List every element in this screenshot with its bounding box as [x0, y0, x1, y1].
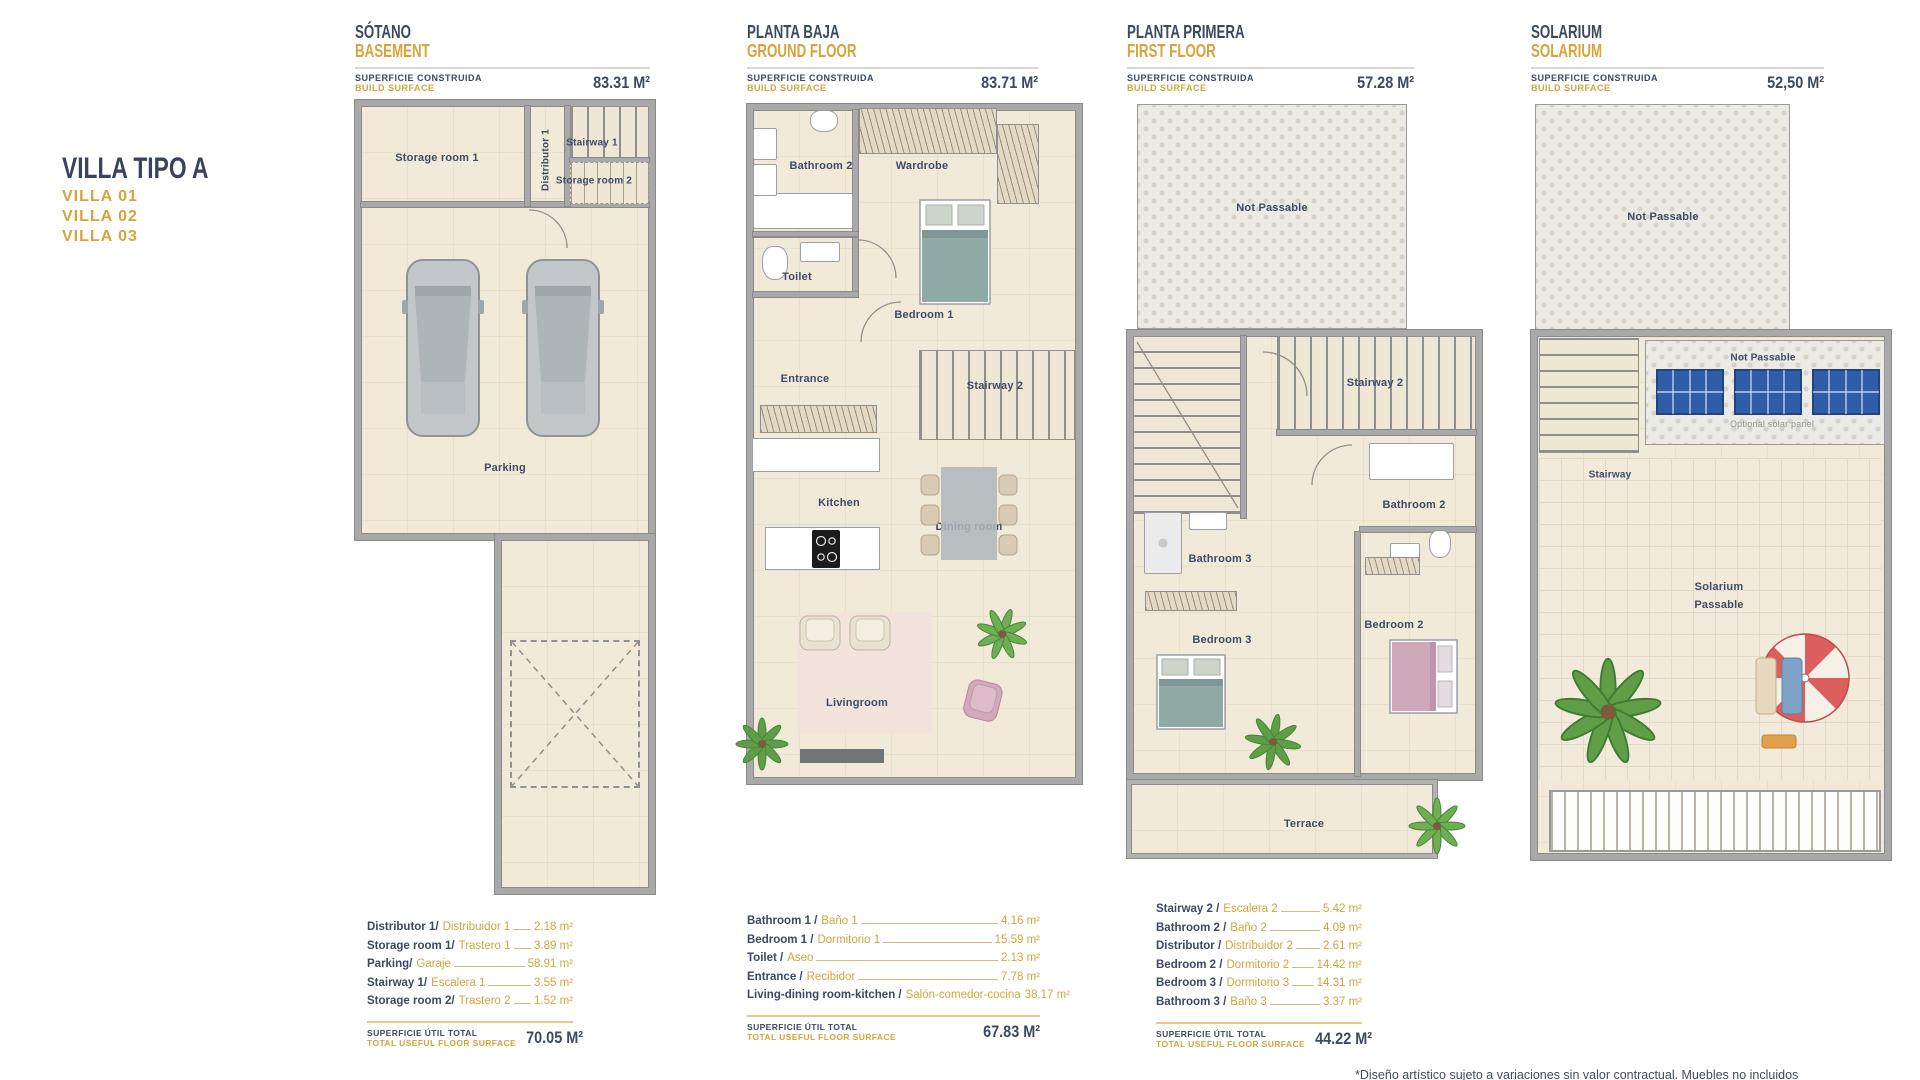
wall: [1277, 430, 1476, 435]
list-item: Distributor / Distribuidor 2 2.61 m²: [1156, 940, 1362, 959]
page-title: VILLA TIPO A: [62, 152, 209, 186]
build-surface-value: 83.71 M²: [981, 73, 1038, 93]
stairwell-stairs: [1133, 336, 1241, 514]
leader-line: [1281, 911, 1320, 912]
leader-line: [514, 1003, 531, 1004]
item-en: Distributor /: [1156, 940, 1221, 952]
divider: [1127, 67, 1414, 69]
room-label-stairway2: Stairway 2: [967, 380, 1023, 392]
list-item: Living-dining room-kitchen / Salón-comed…: [747, 989, 1040, 1008]
list-item: Stairway 1/ Escalera 1 3.55 m²: [367, 977, 573, 996]
item-en: Stairway 2 /: [1156, 903, 1219, 915]
plan-title-en: SOLARIUM: [1531, 41, 1748, 62]
room-label-stairway2: Stairway 2: [1347, 377, 1403, 389]
list-item: Bathroom 2 / Baño 2 4.09 m²: [1156, 922, 1362, 941]
room-label-parking: Parking: [484, 462, 526, 474]
room-label-bathroom2: Bathroom 2: [789, 160, 852, 172]
basement-header: SÓTANO BASEMENT SUPERFICIE CONSTRUIDA BU…: [355, 22, 650, 93]
room-label-not-passable-top: Not Passable: [1627, 211, 1698, 223]
list-item: Storage room 2/ Trastero 2 1.52 m²: [367, 995, 573, 1014]
item-es: Aseo: [787, 952, 813, 964]
item-en: Stairway 1/: [367, 977, 427, 989]
disclaimer-text: *Diseño artístico sujeto a variaciones s…: [1355, 1068, 1798, 1080]
item-value: 1.52 m²: [534, 995, 573, 1007]
surface-label-en: BUILD SURFACE: [747, 83, 874, 93]
wall: [853, 110, 858, 232]
kitchen-counter: [752, 438, 880, 472]
leader-line: [816, 960, 998, 961]
total-value: 44.22 M²: [1315, 1029, 1372, 1049]
ground-floor-room-list: Bathroom 1 / Baño 1 4.16 m² Bedroom 1 / …: [747, 915, 1040, 1042]
total-label-en: TOTAL USEFUL FLOOR SURFACE: [367, 1038, 516, 1048]
item-es: Baño 1: [821, 915, 857, 927]
list-item: Bedroom 1 / Dormitorio 1 15.59 m²: [747, 934, 1040, 953]
sink-fixture: [1189, 512, 1227, 530]
plan-title-es: PLANTA BAJA: [747, 22, 962, 43]
divider: [747, 67, 1038, 69]
item-en: Bathroom 3 /: [1156, 996, 1226, 1008]
item-es: Distribuidor 1: [443, 921, 511, 933]
total-value: 70.05 M²: [526, 1028, 583, 1048]
item-en: Bathroom 2 /: [1156, 922, 1226, 934]
leader-line: [454, 966, 525, 967]
leader-line: [1292, 967, 1314, 968]
leader-line: [488, 985, 531, 986]
bathtub-fixture: [1369, 443, 1454, 480]
build-surface-value: 83.31 M²: [593, 73, 650, 93]
total-label-es: SUPERFICIE ÚTIL TOTAL: [1156, 1029, 1305, 1039]
list-item: Entrance / Recibidor 7.78 m²: [747, 971, 1040, 990]
item-en: Bedroom 3 /: [1156, 977, 1222, 989]
divider: [367, 1021, 573, 1023]
surface-label-en: BUILD SURFACE: [1127, 83, 1254, 93]
room-label-terrace: Terrace: [1284, 818, 1324, 830]
total-label-en: TOTAL USEFUL FLOOR SURFACE: [1156, 1039, 1305, 1049]
total-value: 67.83 M²: [983, 1022, 1040, 1042]
item-en: Bedroom 2 /: [1156, 959, 1222, 971]
basement-room-list: Distributor 1/ Distribuidor 1 2.18 m² St…: [367, 921, 573, 1048]
leader-line: [861, 923, 998, 924]
room-label-kitchen: Kitchen: [818, 497, 860, 509]
item-es: Baño 2: [1230, 922, 1266, 934]
list-item: Stairway 2 / Escalera 2 5.42 m²: [1156, 903, 1362, 922]
item-value: 7.78 m²: [1001, 971, 1040, 983]
item-value: 15.59 m²: [995, 934, 1040, 946]
item-value: 3.89 m²: [534, 940, 573, 952]
sink-fixture: [800, 242, 840, 262]
villa-title-block: VILLA TIPO A VILLA 01 VILLA 02 VILLA 03: [62, 152, 255, 246]
divider: [355, 67, 650, 69]
item-value: 2.61 m²: [1323, 940, 1362, 952]
leader-line: [1270, 1004, 1320, 1005]
surface-label-es: SUPERFICIE CONSTRUIDA: [1127, 73, 1254, 83]
divider: [1156, 1022, 1362, 1024]
plan-title-es: SOLARIUM: [1531, 22, 1748, 43]
list-item: Bathroom 1 / Baño 1 4.16 m²: [747, 915, 1040, 934]
list-item: Bathroom 3 / Baño 3 3.37 m²: [1156, 996, 1362, 1015]
item-value: 58.91 m²: [528, 958, 573, 970]
villa-03-label: VILLA 03: [62, 228, 255, 246]
divider: [1531, 67, 1824, 69]
leader-line: [1270, 930, 1320, 931]
room-label-bedroom2: Bedroom 2: [1364, 619, 1423, 631]
item-value: 5.42 m²: [1323, 903, 1362, 915]
item-value: 3.55 m²: [534, 977, 573, 989]
terrace-area: [1127, 780, 1437, 858]
item-value: 2.18 m²: [534, 921, 573, 933]
wardrobe-hatch: [1365, 557, 1420, 575]
item-value: 4.16 m²: [1001, 915, 1040, 927]
pergola-strip: [1549, 790, 1881, 852]
total-label-es: SUPERFICIE ÚTIL TOTAL: [367, 1028, 516, 1038]
item-es: Trastero 1: [459, 940, 511, 952]
total-label-es: SUPERFICIE ÚTIL TOTAL: [747, 1022, 896, 1032]
room-label-stairway1: Stairway 1: [566, 138, 617, 149]
item-value: 3.37 m²: [1323, 996, 1362, 1008]
room-label-dining: Dining room: [936, 521, 1003, 533]
item-es: Distribuidor 2: [1225, 940, 1293, 952]
total-row: SUPERFICIE ÚTIL TOTAL TOTAL USEFUL FLOOR…: [367, 1028, 573, 1048]
surface-label-es: SUPERFICIE CONSTRUIDA: [747, 73, 874, 83]
villa-01-label: VILLA 01: [62, 188, 255, 206]
first-floor-not-passable-roof: [1137, 104, 1407, 329]
stairway-2-stairs: [919, 350, 1075, 440]
room-label-solarium-line2: Passable: [1694, 599, 1743, 611]
item-es: Recibidor: [807, 971, 856, 983]
divider: [747, 1015, 1040, 1017]
build-surface-value: 57.28 M²: [1357, 73, 1414, 93]
item-es: Dormitorio 3: [1226, 977, 1289, 989]
room-label-bathroom3: Bathroom 3: [1188, 553, 1251, 565]
total-label-en: TOTAL USEFUL FLOOR SURFACE: [747, 1032, 896, 1042]
wardrobe-hatch: [859, 108, 997, 154]
leader-line: [1296, 948, 1320, 949]
solarium-passable-area: [1539, 458, 1881, 780]
item-value: 38.17 m²: [1025, 989, 1070, 1001]
item-es: Escalera 2: [1223, 903, 1277, 915]
plan-title-en: GROUND FLOOR: [747, 41, 962, 62]
villa-02-label: VILLA 02: [62, 208, 255, 226]
wall: [753, 232, 858, 237]
wall: [853, 238, 858, 292]
total-row: SUPERFICIE ÚTIL TOTAL TOTAL USEFUL FLOOR…: [1156, 1029, 1362, 1049]
room-label-not-passable: Not Passable: [1236, 202, 1307, 214]
first-floor-room-list: Stairway 2 / Escalera 2 5.42 m² Bathroom…: [1156, 903, 1362, 1049]
plan-title-en: BASEMENT: [355, 41, 573, 62]
sink-fixture: [753, 164, 777, 196]
shower-fixture: [1144, 512, 1182, 574]
total-row: SUPERFICIE ÚTIL TOTAL TOTAL USEFUL FLOOR…: [747, 1022, 1040, 1042]
floorplan-sheet: VILLA TIPO A VILLA 01 VILLA 02 VILLA 03 …: [0, 0, 1920, 1080]
list-item: Storage room 1/ Trastero 1 3.89 m²: [367, 940, 573, 959]
room-label-stairway: Stairway: [1589, 470, 1632, 481]
item-es: Baño 3: [1230, 996, 1266, 1008]
item-es: Garaje: [416, 958, 451, 970]
toilet-fixture: [1429, 530, 1451, 558]
surface-label-es: SUPERFICIE CONSTRUIDA: [355, 73, 482, 83]
list-item: Bedroom 2 / Dormitorio 2 14.42 m²: [1156, 959, 1362, 978]
room-label-living: Livingroom: [826, 697, 888, 709]
leader-line: [858, 979, 998, 980]
toilet-fixture: [810, 110, 838, 132]
first-floor-header: PLANTA PRIMERA FIRST FLOOR SUPERFICIE CO…: [1127, 22, 1414, 93]
item-en: Distributor 1/: [367, 921, 439, 933]
item-es: Dormitorio 1: [817, 934, 880, 946]
room-label-optional-panel: Optional solar panel: [1730, 419, 1814, 429]
wardrobe-hatch: [1145, 591, 1237, 611]
build-surface-value: 52,50 M²: [1767, 73, 1824, 93]
item-en: Entrance /: [747, 971, 803, 983]
surface-label-en: BUILD SURFACE: [1531, 83, 1658, 93]
room-label-bedroom3: Bedroom 3: [1192, 634, 1251, 646]
list-item: Parking/ Garaje 58.91 m²: [367, 958, 573, 977]
item-en: Parking/: [367, 958, 412, 970]
solarium-header: SOLARIUM SOLARIUM SUPERFICIE CONSTRUIDA …: [1531, 22, 1824, 93]
list-item: Distributor 1/ Distribuidor 1 2.18 m²: [367, 921, 573, 940]
item-es: Salón-comedor-cocina: [906, 989, 1021, 1001]
item-value: 14.31 m²: [1317, 977, 1362, 989]
plan-title-es: PLANTA PRIMERA: [1127, 22, 1339, 43]
wall: [753, 292, 858, 297]
item-es: Dormitorio 2: [1226, 959, 1289, 971]
kitchen-island: [765, 527, 880, 570]
room-label-wardrobe: Wardrobe: [896, 160, 949, 172]
room-label-bedroom1: Bedroom 1: [894, 309, 953, 321]
ground-floor-header: PLANTA BAJA GROUND FLOOR SUPERFICIE CONS…: [747, 22, 1038, 93]
surface-label-es: SUPERFICIE CONSTRUIDA: [1531, 73, 1658, 83]
surface-label-en: BUILD SURFACE: [355, 83, 482, 93]
wardrobe-hatch: [997, 124, 1039, 204]
plan-title-es: SÓTANO: [355, 22, 573, 43]
room-label-toilet: Toilet: [782, 271, 812, 283]
leader-line: [513, 929, 531, 930]
list-item: Toilet / Aseo 2.13 m²: [747, 952, 1040, 971]
plan-title-en: FIRST FLOOR: [1127, 41, 1339, 62]
room-label-bathroom2: Bathroom 2: [1382, 499, 1445, 511]
item-en: Toilet /: [747, 952, 783, 964]
room-label-entrance: Entrance: [781, 373, 830, 385]
living-rug: [797, 612, 932, 734]
entrance-wardrobe-hatch: [760, 405, 877, 433]
stairway-1-stairs: [570, 106, 649, 160]
sink-fixture: [753, 128, 777, 160]
wall: [1241, 336, 1246, 518]
leader-line: [514, 948, 531, 949]
room-label-solarium-line1: Solarium: [1695, 581, 1744, 593]
room-label-storage2: Storage room 2: [556, 176, 632, 187]
wall: [525, 106, 530, 206]
car-ramp: [510, 640, 640, 788]
item-value: 2.13 m²: [1001, 952, 1040, 964]
item-es: Trastero 2: [459, 995, 511, 1007]
room-label-storage1: Storage room 1: [395, 152, 479, 164]
bathtub-fixture: [753, 193, 853, 229]
list-item: Bedroom 3 / Dormitorio 3 14.31 m²: [1156, 977, 1362, 996]
item-value: 4.09 m²: [1323, 922, 1362, 934]
room-label-distributor1: Distributor 1: [541, 129, 552, 191]
item-en: Storage room 2/: [367, 995, 455, 1007]
leader-line: [1292, 985, 1314, 986]
room-label-not-passable-panels: Not Passable: [1730, 353, 1795, 364]
item-en: Living-dining room-kitchen /: [747, 989, 902, 1001]
wall: [1360, 527, 1476, 532]
wall: [1355, 532, 1360, 776]
item-es: Escalera 1: [431, 977, 485, 989]
leader-line: [883, 942, 992, 943]
item-en: Storage room 1/: [367, 940, 455, 952]
item-en: Bedroom 1 /: [747, 934, 813, 946]
item-en: Bathroom 1 /: [747, 915, 817, 927]
solarium-stairs: [1539, 338, 1639, 453]
item-value: 14.42 m²: [1317, 959, 1362, 971]
